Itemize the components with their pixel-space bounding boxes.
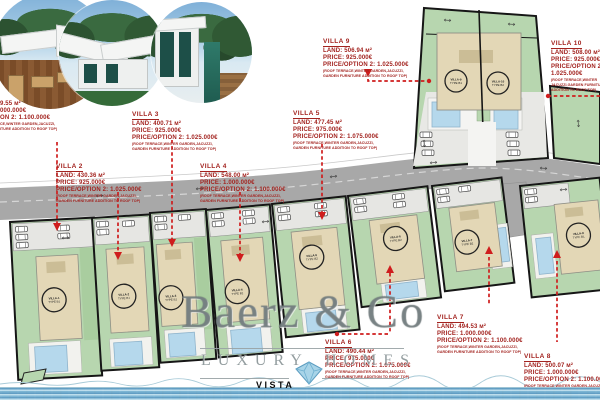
unit-type-label: TYPE B2 [492,83,504,87]
photo-furniture [31,76,54,88]
pool [231,328,263,355]
fine-print: GARDEN FURNITURE ADDITION TO ROOF TOP) [56,199,142,204]
pool [35,345,68,373]
price-line: 000.000€ [0,108,57,115]
price-option-value: 1.025.000€ [551,71,600,78]
price-line: PRICE: 925.000€ [56,180,142,187]
price-line: PRICE: 1.000.000€ [437,331,523,338]
villa-heading: VILLA 2 [56,163,83,172]
fine-print: GARDEN FURNITURE ADDITION TO ROOF TOP) [437,350,523,355]
villa-heading: VILLA 10 [551,40,582,49]
unit-type-label: TYPE B1 [450,81,462,85]
plot-2: VILLA-2 TYPE B1 [92,214,159,370]
price-option-line: PRICE/OPTION 2: 1.100.000€ [200,187,286,194]
photo-pool [204,42,220,103]
land-line: LAND: 548.00 м² [200,173,286,180]
price-option-line: PRICE/OPTION 2: 1.025.000€ [56,187,142,194]
fine-print: GARDEN FURNITURE ADDITION TO ROOF TOP) [325,375,411,380]
land-line: 9.55 м² [0,101,57,108]
sea-water-band [0,387,600,400]
villa-heading: VILLA 3 [132,111,159,120]
plot-1: VILLA-1 TYPE B1 [10,218,102,380]
fine-print: GARDEN FURNITURE ADDITION TO ROOF TOP) [323,74,409,79]
villa-heading: VILLA 8 [524,353,551,362]
annotation-villa-3: VILLA 3 LAND: 400.71 м² PRICE: 925.000€ … [132,103,218,152]
price-line: PRICE: 925.000€ [132,128,218,135]
price-option-line: PRICE/OPTION 2: 1.075.000€ [293,134,379,141]
price-option-line: ON 2: 1.100.000€ [0,115,57,122]
price-line: PRICE: 975.000€ [293,127,379,134]
annotation-villa-6: VILLA 6 LAND: 490.44 м² PRICE: 975.000€ … [325,331,411,380]
annotation-villa-10: VILLA 10 LAND: 508.00 м² PRICE: 925.000€… [551,32,600,92]
photo-window [179,32,191,76]
pool [168,332,196,357]
price-line: PRICE: 1.000.000€ [200,180,286,187]
unit-type-label: TYPE B1 [118,296,131,301]
annotation-villa-2: VILLA 2 LAND: 430.36 м² PRICE: 925.000€ … [56,155,142,204]
land-line: LAND: 506.94 м² [323,48,409,55]
price-option-line: PRICE/OPTION 2: 1.100.000€ [524,377,600,384]
annotation-villa-4: VILLA 4 LAND: 548.00 м² PRICE: 1.000.000… [200,155,286,204]
land-line: LAND: 400.71 м² [132,121,218,128]
price-option-line: PRICE/OPTION 2: 1.025.000€ [323,62,409,69]
photo-window [84,64,97,83]
price-line: PRICE: 925.000€ [323,55,409,62]
land-line: LAND: 477.45 м² [293,120,379,127]
land-line: LAND: 490.44 м² [325,349,411,356]
fine-print: GARDEN FURNITURE ADDITION TO ROOF TOP) [132,147,218,152]
price-option-line: PRICE/OPTION 2: [551,64,600,71]
land-line: LAND: 494.53 м² [437,324,523,331]
price-line: PRICE: 1.000.000€ [524,370,600,377]
villa-heading: VILLA 5 [293,110,320,119]
photo-villa-exterior [59,0,165,106]
pool [306,310,338,332]
plot-partial-right [550,86,600,164]
annotation-villa-9: VILLA 9 LAND: 506.94 м² PRICE: 925.000€ … [323,30,409,79]
land-line: LAND: 430.36 м² [56,173,142,180]
plot-6: VILLA-6 TYPE B2 [348,186,441,307]
photo-villa-pool [151,2,252,103]
price-line: PRICE: 925.000€ [551,57,600,64]
villa-heading: VILLA 4 [200,163,227,172]
pool [114,341,143,366]
plot-9-10: VILLA-9 TYPE B1 VILLA-10 TYPE B2 [413,8,548,168]
photo-window [106,64,119,83]
site-plan-image: VILLA-1 TYPE B1 VILLA-2 TYPE B1 [0,0,600,400]
villa-heading: VILLA 9 [323,38,350,47]
plot-7: VILLA-7 TYPE B2 [432,177,514,291]
annotation-villa-1: 9.55 м² 000.000€ ON 2: 1.100.000€ CE,WIN… [0,101,57,132]
price-option-line: PRICE/OPTION 2: 1.075.000€ [325,363,411,370]
fine-print: ITURE ADDITION TO ROOF TOP) [0,127,57,132]
land-line: LAND: 508.00 м² [551,50,600,57]
pool [536,237,555,274]
plot-8: VILLA-8 TYPE B1 [520,178,600,298]
photo-deck [220,73,252,103]
price-option-line: PRICE/OPTION 2: 1.025.000€ [132,135,218,142]
plot-3: VILLA-3 TYPE B1 [150,209,216,363]
photo-furniture [8,75,24,103]
price-option-line: PRICE/OPTION 2: 1.100.000€ [437,338,523,345]
annotation-villa-5: VILLA 5 LAND: 477.45 м² PRICE: 975.000€ … [293,102,379,151]
annotation-villa-7: VILLA 7 LAND: 494.53 м² PRICE: 1.000.000… [437,306,523,355]
villa-heading: VILLA 7 [437,314,464,323]
plot-4: VILLA-4 TYPE B1 [206,204,283,357]
fine-print: GARDEN FURNITURE ADDITION TO ROOF TOP) [200,199,286,204]
villa-heading: VILLA 6 [325,339,352,348]
plot-5: VILLA-5 TYPE B2 [272,196,360,337]
unit-type-label: TYPE B1 [165,297,178,302]
photo-window [160,32,174,76]
price-line: PRICE: 975.000€ [325,356,411,363]
unit-type-label: TYPE B1 [48,299,60,304]
fine-print: ADDITION TO ROOF TOP) [551,88,600,93]
fine-print: GARDEN FURNITURE ADDITION TO ROOF TOP) [293,146,379,151]
land-line: LAND: 500.07 м² [524,363,600,370]
